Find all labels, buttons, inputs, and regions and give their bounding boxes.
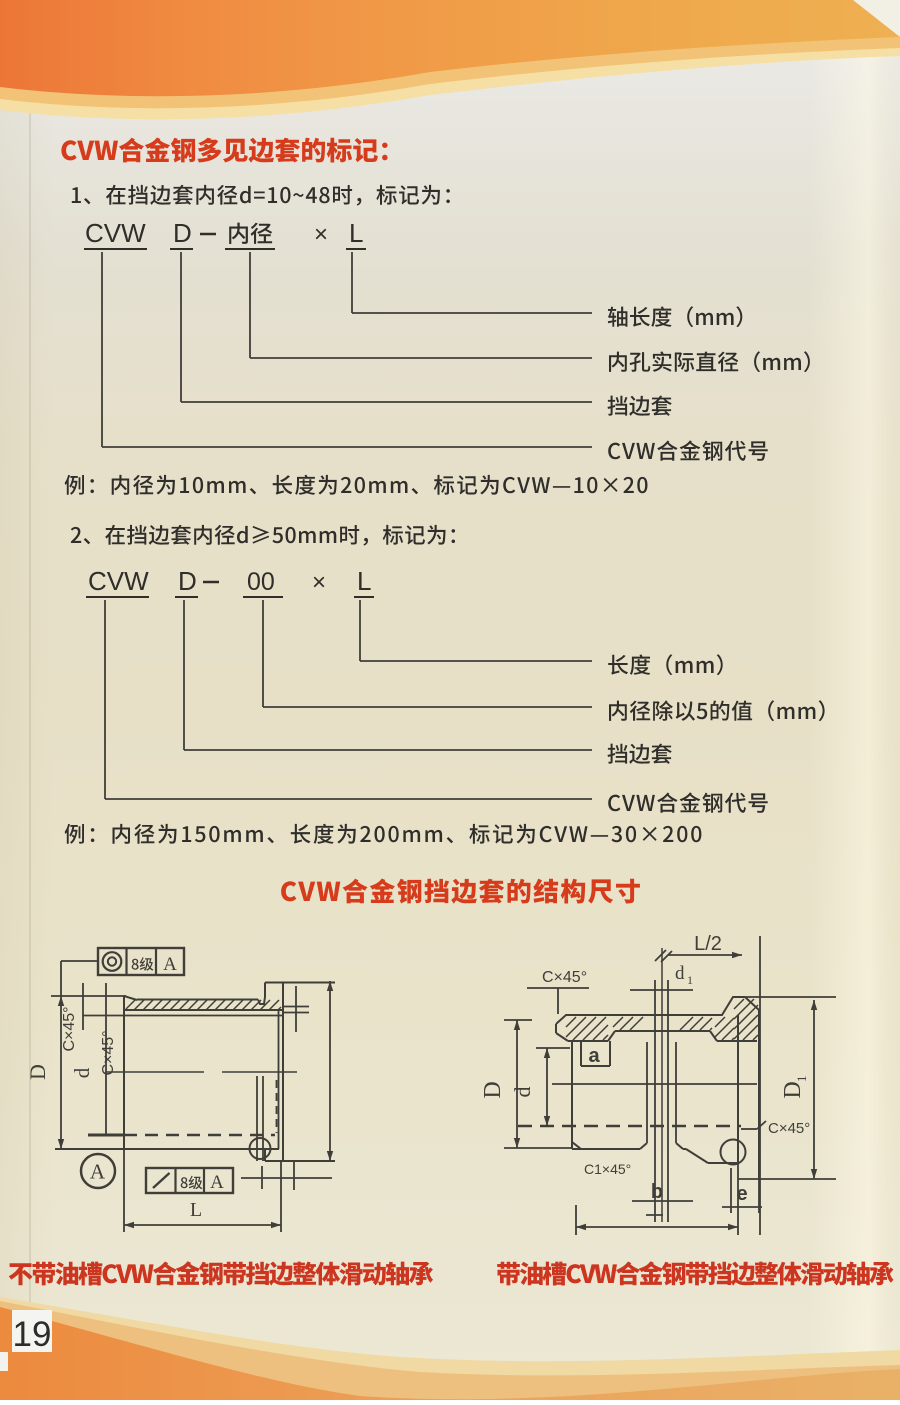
svg-text:d: d (70, 1067, 94, 1078)
svg-text:D: D (173, 218, 192, 248)
svg-text:L: L (349, 218, 363, 248)
svg-text:C×45°: C×45° (100, 1030, 117, 1075)
svg-text:d: d (510, 1087, 535, 1098)
svg-text:D: D (178, 566, 197, 596)
svg-text:L/2: L/2 (694, 933, 722, 955)
svg-text:D: D (480, 1081, 506, 1098)
svg-text:19: 19 (13, 1315, 52, 1354)
svg-text:1: 1 (794, 1076, 809, 1083)
svg-text:a: a (588, 1045, 600, 1067)
svg-text:×: × (314, 221, 328, 248)
svg-text:L: L (190, 1199, 202, 1221)
svg-text:C×45°: C×45° (542, 969, 587, 986)
svg-text:d: d (675, 963, 685, 984)
svg-text:D: D (780, 1081, 806, 1098)
svg-text:A: A (163, 954, 177, 975)
svg-text:C×45°: C×45° (768, 1120, 810, 1137)
svg-text:b: b (651, 1181, 663, 1203)
svg-text:×: × (312, 569, 326, 596)
svg-text:L: L (357, 566, 371, 596)
svg-text:C1×45°: C1×45° (584, 1161, 631, 1177)
svg-text:CVW: CVW (88, 566, 149, 596)
svg-text:CVW: CVW (85, 218, 146, 248)
svg-text:A: A (90, 1160, 106, 1184)
svg-text:A: A (210, 1172, 224, 1193)
svg-text:D: D (25, 1064, 50, 1080)
svg-text:1: 1 (687, 973, 693, 987)
svg-text:C×45°: C×45° (61, 1006, 78, 1051)
svg-text:00: 00 (247, 568, 275, 596)
